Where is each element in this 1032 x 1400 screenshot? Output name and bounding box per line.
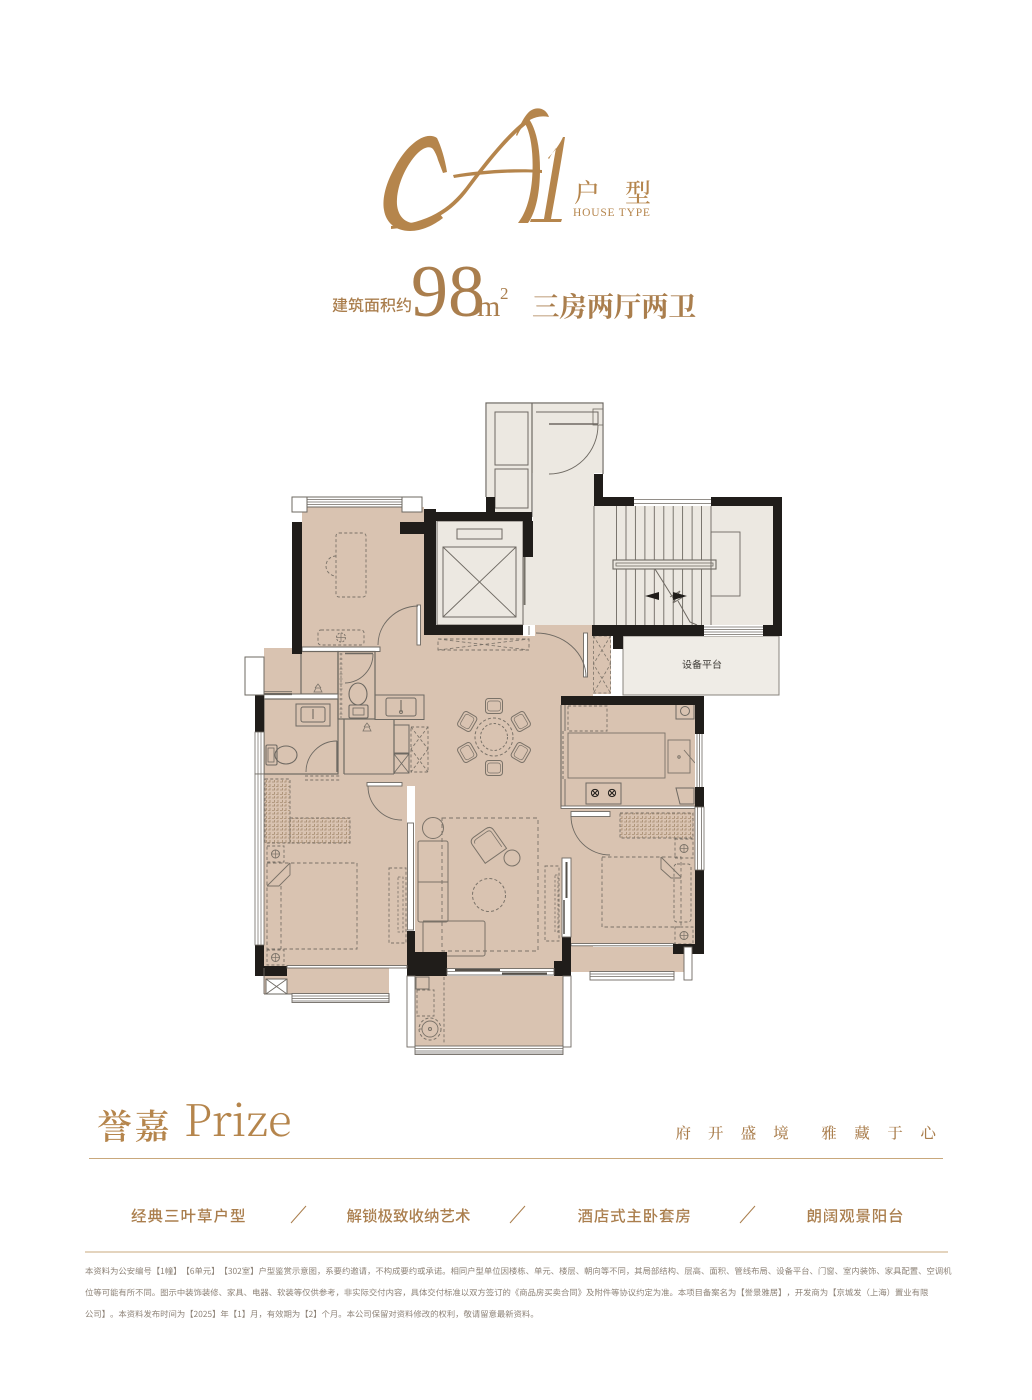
svg-text:m: m <box>477 290 500 323</box>
svg-text:98: 98 <box>411 251 485 333</box>
svg-text:2: 2 <box>500 284 509 303</box>
svg-text:HOUSE TYPE: HOUSE TYPE <box>573 207 651 219</box>
